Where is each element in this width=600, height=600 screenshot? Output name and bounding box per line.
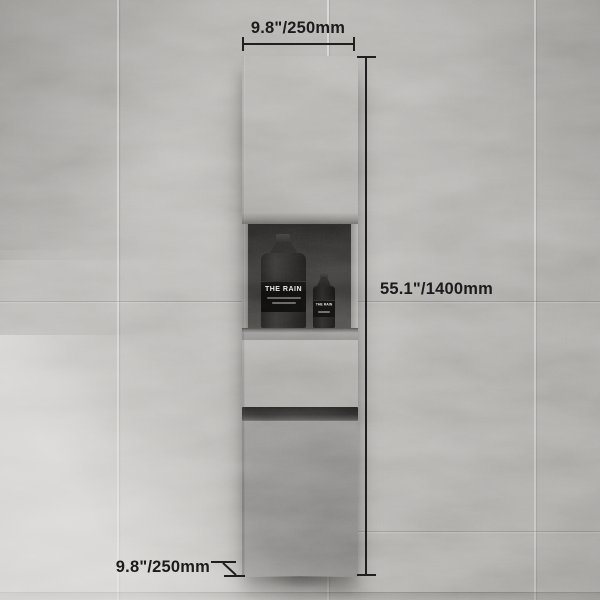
bottle-neck xyxy=(317,277,331,286)
niche-right-frame xyxy=(351,224,358,328)
tile-seam xyxy=(534,0,536,600)
bottle-label-text: THE RAIN xyxy=(313,303,336,307)
niche-sill xyxy=(242,328,358,340)
bottle-label: THE RAIN xyxy=(313,300,335,317)
cabinet-drop-shadow xyxy=(246,576,354,592)
tile-seam xyxy=(356,531,600,532)
bottle-label-fineprint xyxy=(267,297,301,299)
small-bottle: THE RAIN xyxy=(313,272,335,328)
wall-floor-junction xyxy=(0,592,600,600)
cabinet-right-edge xyxy=(242,56,245,577)
bottle-label-text: THE RAIN xyxy=(261,286,306,293)
bottle-cap xyxy=(276,234,290,243)
handle-groove xyxy=(242,407,358,421)
cabinet-middle-panel xyxy=(242,340,358,407)
width-dimension-label: 9.8"/250mm xyxy=(228,19,368,38)
niche-interior: THE RAIN THE RAIN xyxy=(248,224,351,328)
bottle-label-fineprint xyxy=(272,302,296,304)
tile-seam xyxy=(117,0,119,600)
large-bottle: THE RAIN xyxy=(261,234,306,328)
shelf-top-edge xyxy=(242,212,358,224)
product-dimension-image: THE RAIN THE RAIN xyxy=(0,0,600,600)
cabinet-bottom-door xyxy=(242,421,358,577)
depth-dimension-label: 9.8"/250mm xyxy=(112,558,210,577)
height-dimension-label: 55.1"/1400mm xyxy=(380,280,493,299)
bottle-label-fineprint xyxy=(318,311,330,313)
wall-cabinet: THE RAIN THE RAIN xyxy=(242,56,358,577)
cabinet-top-door xyxy=(242,56,358,212)
open-shelf-niche: THE RAIN THE RAIN xyxy=(242,224,358,328)
bottle-label: THE RAIN xyxy=(261,281,306,312)
